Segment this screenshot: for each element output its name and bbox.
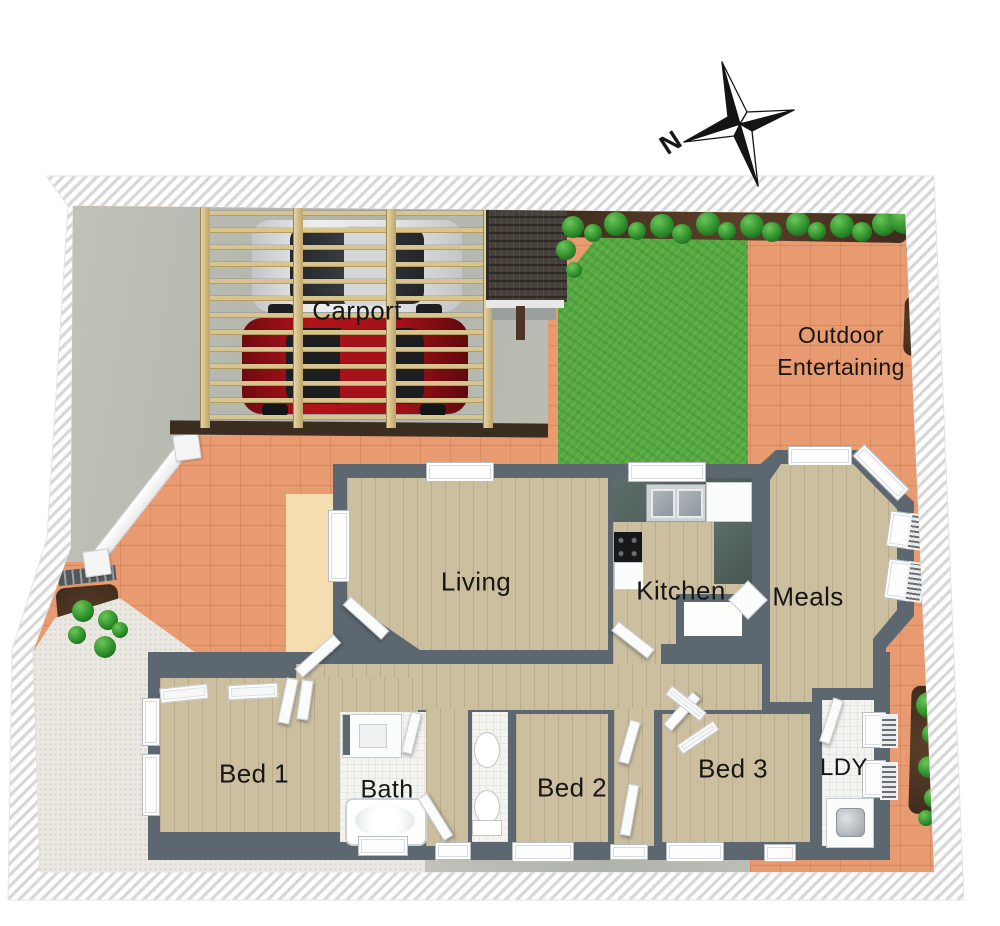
shrub	[562, 216, 584, 238]
window	[666, 842, 724, 862]
window	[512, 842, 574, 862]
window	[628, 462, 706, 482]
shrub	[112, 622, 128, 638]
living-floor	[347, 478, 608, 650]
lawn	[558, 214, 748, 468]
room-label-carport: Carport	[312, 296, 402, 327]
shrub	[672, 224, 692, 244]
toilet	[472, 790, 500, 834]
room-label-laundry: LDY	[820, 754, 868, 782]
shrub	[72, 600, 94, 622]
room-label-outdoor-entertaining: Outdoor Entertaining	[777, 319, 905, 383]
fence-post	[172, 432, 201, 461]
window	[142, 698, 160, 746]
shrub	[628, 222, 646, 240]
window-shutter	[880, 714, 898, 748]
window	[328, 510, 350, 582]
shrub	[604, 212, 628, 236]
shrub	[650, 214, 674, 238]
shrub	[830, 214, 854, 238]
pergola-post	[200, 180, 210, 428]
window	[788, 446, 852, 466]
room-label-bath: Bath	[360, 776, 413, 805]
shrub	[556, 240, 576, 260]
toilet-tank	[472, 820, 502, 836]
shrub	[786, 212, 810, 236]
island-top	[684, 602, 742, 636]
laundry-trough	[826, 798, 874, 848]
wardrobe	[228, 683, 279, 701]
shrub	[852, 222, 872, 242]
room-label-meals: Meals	[772, 582, 843, 613]
floor-plan-scene: N Carport Outdoor Entertaining Living Ki…	[0, 0, 1000, 926]
window	[358, 836, 408, 856]
cooktop	[614, 532, 642, 562]
room-label-living: Living	[441, 567, 511, 598]
shrub	[696, 212, 720, 236]
room-label-bed2: Bed 2	[537, 773, 607, 804]
fridge	[706, 482, 752, 522]
toilet-bowl	[474, 790, 500, 824]
shrub	[762, 222, 782, 242]
window	[142, 754, 160, 816]
window	[426, 462, 494, 482]
roof-post	[516, 306, 525, 340]
bathtub-basin	[355, 805, 415, 836]
window-shutter	[880, 762, 898, 800]
shrub	[68, 626, 86, 644]
trough-bowl	[836, 808, 865, 837]
kitchen-sink	[646, 484, 706, 522]
vanity-basin	[359, 724, 387, 748]
room-label-bed1: Bed 1	[219, 759, 289, 790]
shrub	[808, 222, 826, 240]
roof-trim	[486, 300, 564, 308]
bath-vanity	[342, 714, 402, 758]
window	[435, 842, 471, 860]
shrub	[566, 262, 582, 278]
shrub	[94, 636, 116, 658]
outdoor-label-line1: Outdoor	[777, 319, 905, 351]
room-label-kitchen: Kitchen	[636, 576, 726, 607]
outdoor-label-line2: Entertaining	[777, 351, 905, 383]
shrub	[718, 222, 736, 240]
shrub	[584, 224, 602, 242]
room-label-bed3: Bed 3	[698, 754, 768, 785]
shrub	[740, 214, 764, 238]
window	[764, 844, 796, 862]
pergola-post	[293, 180, 303, 428]
vanity-mirror	[343, 715, 350, 755]
compass-rose-icon	[668, 52, 812, 196]
sink-bowl	[651, 489, 675, 518]
sink-bowl	[677, 489, 703, 518]
fence-post	[82, 548, 111, 577]
wc-basin	[474, 732, 500, 768]
window	[610, 844, 648, 860]
